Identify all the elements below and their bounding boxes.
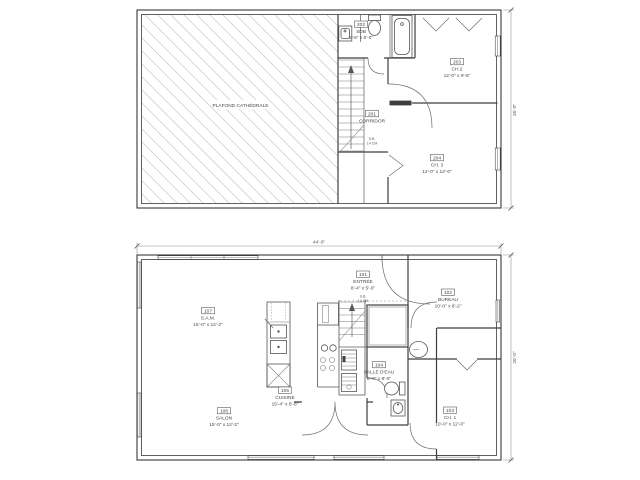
dryer-vent-lines xyxy=(342,377,356,385)
closet-doors-icon xyxy=(423,18,482,31)
room-number: 106 xyxy=(220,409,228,415)
kitchen-sink-icon xyxy=(321,345,327,351)
kitchen-counter xyxy=(318,325,340,387)
room-number: 204 xyxy=(433,156,441,162)
pantry-walls xyxy=(367,305,408,347)
room-number: 105 xyxy=(281,388,289,394)
room-label-107: 107 S.A.M. 15'-0" x 12'-2" xyxy=(193,308,223,329)
main-top-dimension: 44'-0" xyxy=(135,240,504,255)
bathroom-door-arc xyxy=(368,58,384,74)
room-name: S.A.M. xyxy=(201,316,215,322)
room-number: 202 xyxy=(357,22,365,28)
room-number: 102 xyxy=(444,290,452,296)
main-floor-plan: 44'-0" 26'-0" xyxy=(135,240,519,463)
room-number: 107 xyxy=(204,309,212,315)
stair-note-line2: 14 CM xyxy=(358,299,369,303)
room-number: 201 xyxy=(368,112,376,118)
room-label-104: 104 SALLE D'EAU 8'-0" x 8'-0" xyxy=(364,362,395,383)
room-name: SALLE D'EAU xyxy=(364,370,395,376)
stove-burner-icon xyxy=(320,357,325,362)
kitchen-fixtures xyxy=(318,303,340,387)
room-name: CORRIDOR xyxy=(359,119,386,125)
room-name: CUISINE xyxy=(275,395,294,401)
floor-plan-drawing: PLAFOND CATHÉDRALE xyxy=(0,0,640,480)
toilet-icon xyxy=(385,382,399,395)
stair-up-arrow-icon xyxy=(349,303,355,311)
stove-burner-icon xyxy=(329,365,334,370)
main-right-dimension: 26'-0" xyxy=(503,253,518,463)
bedroom2-door-arc xyxy=(388,84,432,128)
room-name: CH. 3 xyxy=(431,163,444,169)
dimension-text: 26'-0" xyxy=(512,104,518,117)
upper-stair-note: S.B. 14 CM xyxy=(367,137,378,146)
room-number: 104 xyxy=(375,363,383,369)
stove-burner-icon xyxy=(329,357,334,362)
room-dims: 8'-4" x 5'-0" xyxy=(351,286,375,292)
dryer-door-icon xyxy=(347,385,351,389)
room-name: CH.2 xyxy=(452,67,463,73)
room-dims: 10'-0" x 12'-0" xyxy=(435,422,465,428)
main-exterior-wall-outer xyxy=(137,255,501,460)
floor-plan-canvas: PLAFOND CATHÉDRALE xyxy=(0,0,640,480)
room-dims: 12'-0" x 12'-0" xyxy=(422,169,452,175)
washer-control-icon xyxy=(343,356,346,362)
room-name: SDB xyxy=(356,29,366,35)
salon-double-door-arcs xyxy=(302,402,368,435)
pantry-wall-inner-line xyxy=(369,307,406,345)
main-stairs xyxy=(339,300,365,395)
dryer-icon xyxy=(342,374,357,392)
room-number: 103 xyxy=(446,408,454,414)
room-dims: 15'-0" x 12'-2" xyxy=(209,422,239,428)
room-dims: 15'-4" x 8'-8" xyxy=(272,402,299,408)
dishwasher-cross-lines xyxy=(267,364,290,387)
room-label-105: 105 CUISINE 15'-4" x 8'-8" xyxy=(272,387,299,408)
main-interior-walls xyxy=(294,256,501,460)
toilet-icon xyxy=(369,21,381,36)
stove-burner-icon xyxy=(320,365,325,370)
room-label-103: 103 CH. 1 10'-0" x 12'-0" xyxy=(435,407,465,428)
bathtub-drain-icon xyxy=(401,23,404,26)
room-label-102: 102 BUREAU 10'-0" x 8'-2" xyxy=(435,289,462,310)
island-faucet-dot xyxy=(277,330,279,332)
kitchen-island xyxy=(265,302,290,387)
kitchen-sink-icon xyxy=(330,345,336,351)
stair-note-line2: 14 CM xyxy=(367,142,378,146)
room-dims: 6'-6" x 6'-0" xyxy=(349,35,373,41)
fridge-handle-icon xyxy=(323,306,329,323)
fridge-icon xyxy=(318,303,339,325)
room-label-203: 203 CH.2 12'-0" x 9'-8" xyxy=(444,59,471,80)
room-label-101: 101 ENTRÉE 8'-4" x 5'-0" xyxy=(351,271,375,292)
entry-door-arc xyxy=(382,256,430,304)
room-dims: 12'-0" x 9'-8" xyxy=(444,73,471,79)
stair-note-line1: S.B. xyxy=(360,295,367,299)
main-stair-note: S.B. 14 CM xyxy=(358,295,369,304)
island-overhang-dashes xyxy=(272,303,286,321)
room-dims: 10'-0" x 8'-2" xyxy=(435,304,462,310)
plafond-cathedrale-label: PLAFOND CATHÉDRALE xyxy=(213,102,269,109)
closet-doors-icon xyxy=(457,360,477,370)
room-label-201: 201 CORRIDOR xyxy=(359,111,386,125)
wall-stub xyxy=(390,101,412,106)
room-number: 101 xyxy=(359,272,367,278)
bathtub-basin-icon xyxy=(395,19,410,55)
room-name: SALON xyxy=(216,416,233,422)
island-faucet-line xyxy=(265,319,273,328)
upper-partition-lines xyxy=(361,15,391,204)
room-number: 203 xyxy=(453,60,461,66)
room-dims: 8'-0" x 8'-0" xyxy=(367,376,391,382)
main-windows xyxy=(137,256,499,460)
room-label-106: 106 SALON 15'-0" x 12'-2" xyxy=(209,408,239,429)
room-name: ENTRÉE xyxy=(353,278,372,285)
island-faucet-dot xyxy=(277,346,279,348)
upper-floor-plan: PLAFOND CATHÉDRALE xyxy=(137,8,518,211)
bureau-door-arc xyxy=(411,302,437,328)
upper-stairs xyxy=(338,60,364,154)
room-dims: 15'-0" x 12'-2" xyxy=(193,322,223,328)
room-label-204: 204 CH. 3 12'-0" x 12'-0" xyxy=(422,155,452,176)
sink-faucet-icon xyxy=(397,404,399,406)
bedroom3-door-icon xyxy=(389,155,403,176)
sink-faucet-icon xyxy=(344,30,346,32)
upper-right-dimension: 26'-0" xyxy=(503,8,518,211)
stair-up-arrow-icon xyxy=(348,65,354,73)
toilet-tank-icon xyxy=(369,15,381,21)
dimension-text: 44'-0" xyxy=(313,240,326,246)
dimension-text: 26'-0" xyxy=(512,351,518,364)
room-name: BUREAU xyxy=(438,297,459,303)
toilet-tank-icon xyxy=(400,382,406,395)
stair-note-line1: S.B. xyxy=(369,137,376,141)
bedroom1-door-arc xyxy=(410,423,437,449)
room-name: CH. 1 xyxy=(444,415,457,421)
